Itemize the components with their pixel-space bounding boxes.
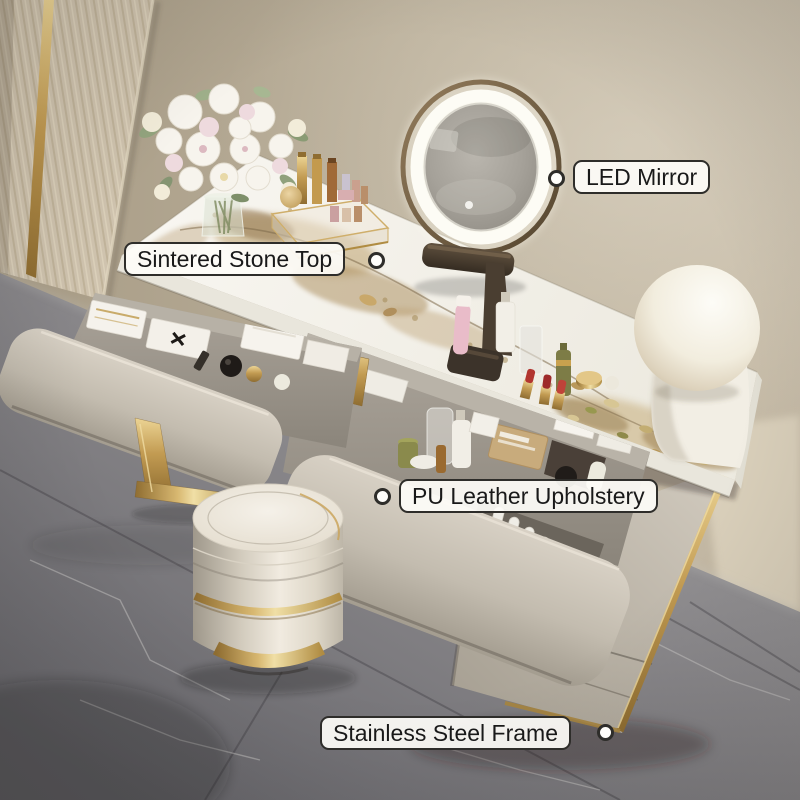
annotation-label-led-mirror: LED Mirror <box>573 160 710 194</box>
callout-dot-sintered-stone-top <box>368 252 385 269</box>
callout-dot-pu-leather <box>374 488 391 505</box>
vanity-scene-illustration <box>0 0 800 800</box>
annotation-label-pu-leather-upholstery: PU Leather Upholstery <box>399 479 658 513</box>
annotation-label-stainless-steel-frame: Stainless Steel Frame <box>320 716 571 750</box>
callout-dot-stainless-steel-frame <box>597 724 614 741</box>
annotation-label-sintered-stone-top: Sintered Stone Top <box>124 242 345 276</box>
photo-vignette <box>0 0 800 800</box>
product-photo-vanity-dresser: LED Mirror Sintered Stone Top PU Leather… <box>0 0 800 800</box>
callout-dot-led-mirror <box>548 170 565 187</box>
